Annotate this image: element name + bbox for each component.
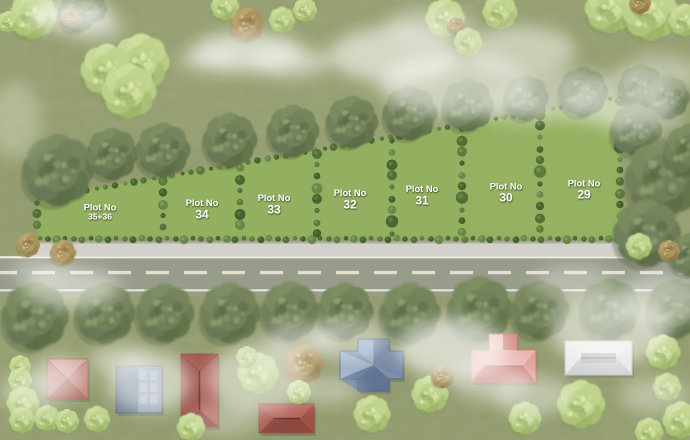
svg-text:31: 31 [415,194,429,208]
svg-text:Plot No: Plot No [406,184,439,194]
svg-text:34: 34 [195,208,209,222]
svg-text:29: 29 [577,188,591,202]
svg-text:Plot No: Plot No [334,188,367,198]
svg-text:30: 30 [499,191,513,205]
svg-text:Plot No: Plot No [186,198,219,208]
svg-text:33: 33 [267,203,281,217]
svg-text:Plot No: Plot No [258,193,291,203]
svg-text:32: 32 [343,198,357,212]
svg-text:35+36: 35+36 [88,212,112,222]
